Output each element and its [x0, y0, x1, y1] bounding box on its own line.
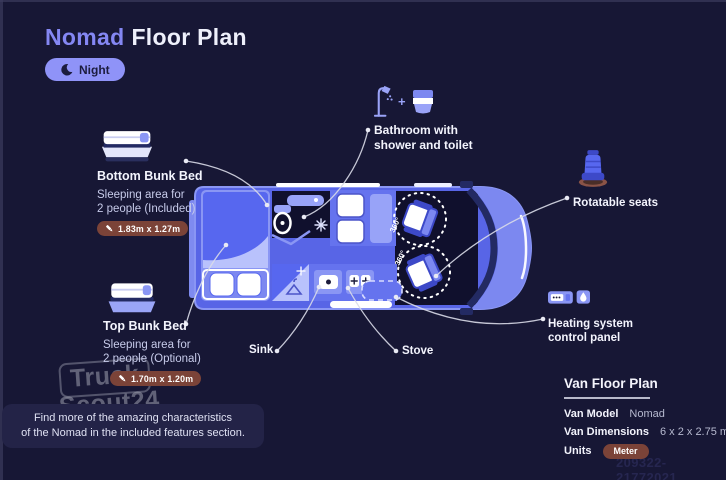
sink-label: Sink — [249, 344, 273, 356]
heating-label: Heating system control panel — [548, 317, 633, 346]
night-mode-toggle[interactable]: Night — [45, 58, 125, 81]
sliding-door-area — [362, 281, 402, 300]
bed — [201, 190, 270, 301]
entry-step — [330, 301, 392, 308]
bathroom-sink — [287, 195, 324, 206]
heating-annotation: Heating system control panel — [548, 288, 633, 346]
info-panel-title: Van Floor Plan — [564, 376, 724, 391]
top-bunk-description: Sleeping area for 2 people (Optional) — [103, 338, 201, 367]
bottom-bunk-bed-icon — [97, 126, 157, 164]
heating-panel-icon — [548, 288, 590, 306]
top-bunk-bed-icon — [103, 278, 161, 314]
van-dimensions-label: Van Dimensions — [564, 426, 649, 438]
pencil-icon — [118, 374, 127, 383]
top-bunk-dimensions-badge: 1.70m x 1.20m — [110, 371, 201, 386]
van-info-panel: Van Floor Plan Van Model Nomad Van Dimen… — [564, 376, 724, 465]
bottom-bunk-title: Bottom Bunk Bed — [97, 169, 203, 185]
info-panel-underline — [564, 397, 650, 399]
rotatable-seats-annotation: Rotatable seats — [577, 150, 658, 209]
bottom-bunk-dimensions-badge: 1.83m x 1.27m — [97, 221, 188, 236]
moon-icon — [60, 63, 73, 76]
side-mirror-top — [460, 181, 473, 188]
shower-sparkle — [315, 219, 327, 231]
toilet-icon — [411, 89, 435, 115]
stove-label: Stove — [402, 345, 433, 357]
van-dimensions-value: 6 x 2 x 2.75 m — [660, 426, 726, 438]
rotatable-seat-icon — [577, 150, 609, 188]
rotatable-seats-label: Rotatable seats — [573, 197, 658, 209]
van-model-label: Van Model — [564, 408, 618, 420]
dinette — [330, 190, 396, 246]
van-model-row: Van Model Nomad — [564, 408, 724, 420]
van-model-title-accent: Nomad — [45, 24, 124, 50]
van-floorplan-infographic: Truck Scout24 209322-21772021 NomadFloor… — [0, 0, 726, 480]
page-title: NomadFloor Plan — [45, 24, 247, 51]
shower-icon — [374, 85, 393, 118]
pencil-icon — [105, 224, 114, 233]
top-edge-line — [0, 0, 726, 2]
bathroom-annotation: + Bathroom with shower and toilet — [374, 85, 473, 153]
bottom-bunk-annotation: Bottom Bunk Bed Sleeping area for 2 peop… — [97, 126, 203, 238]
bottom-bunk-description: Sleeping area for 2 people (Included) — [97, 188, 203, 217]
side-mirror-bottom — [460, 308, 473, 315]
roof-rail-2 — [414, 183, 452, 187]
van-model-value: Nomad — [629, 408, 664, 420]
bathroom-label: Bathroom with shower and toilet — [374, 123, 473, 153]
van-floorplan-drawing: 360° 360° — [188, 178, 540, 320]
van-dimensions-row: Van Dimensions 6 x 2 x 2.75 m — [564, 426, 724, 438]
kitchen-block — [272, 264, 402, 301]
top-bunk-annotation: Top Bunk Bed Sleeping area for 2 people … — [103, 278, 201, 388]
units-value-badge: Meter — [603, 444, 649, 459]
units-label: Units — [564, 445, 592, 457]
top-bunk-title: Top Bunk Bed — [103, 319, 201, 335]
plus-icon: + — [398, 94, 406, 109]
title-rest: Floor Plan — [131, 24, 246, 50]
footnote-box: Find more of the amazing characteristics… — [2, 404, 264, 448]
roof-rail — [276, 183, 380, 187]
units-row: Units Meter — [564, 444, 724, 459]
night-mode-label: Night — [79, 63, 110, 77]
